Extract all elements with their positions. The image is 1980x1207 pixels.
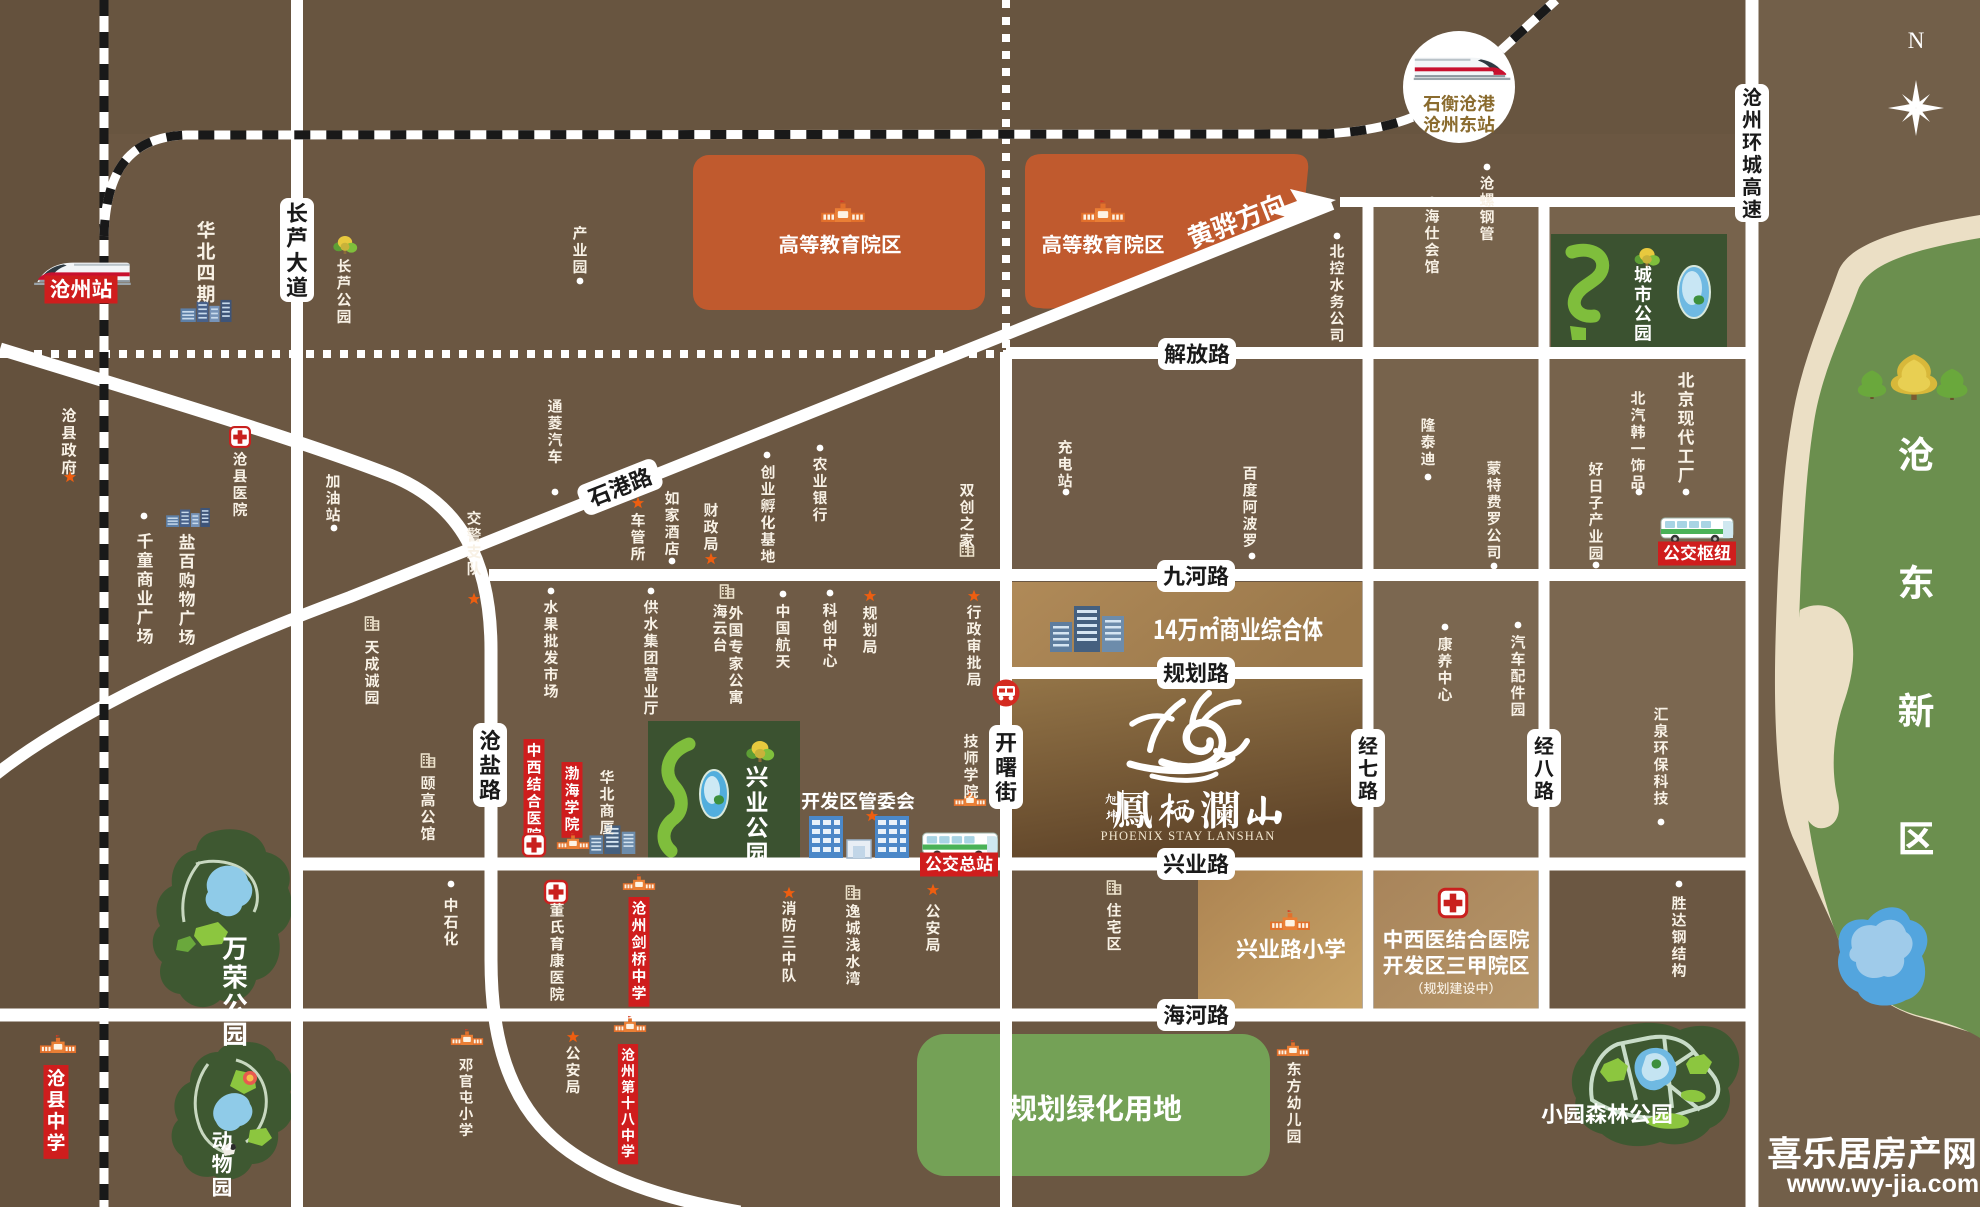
svg-text:www.wy-jia.com: www.wy-jia.com: [1786, 1170, 1979, 1198]
svg-text:PHOENIX STAY LANSHAN: PHOENIX STAY LANSHAN: [1101, 829, 1276, 843]
svg-text:N: N: [1908, 28, 1925, 53]
